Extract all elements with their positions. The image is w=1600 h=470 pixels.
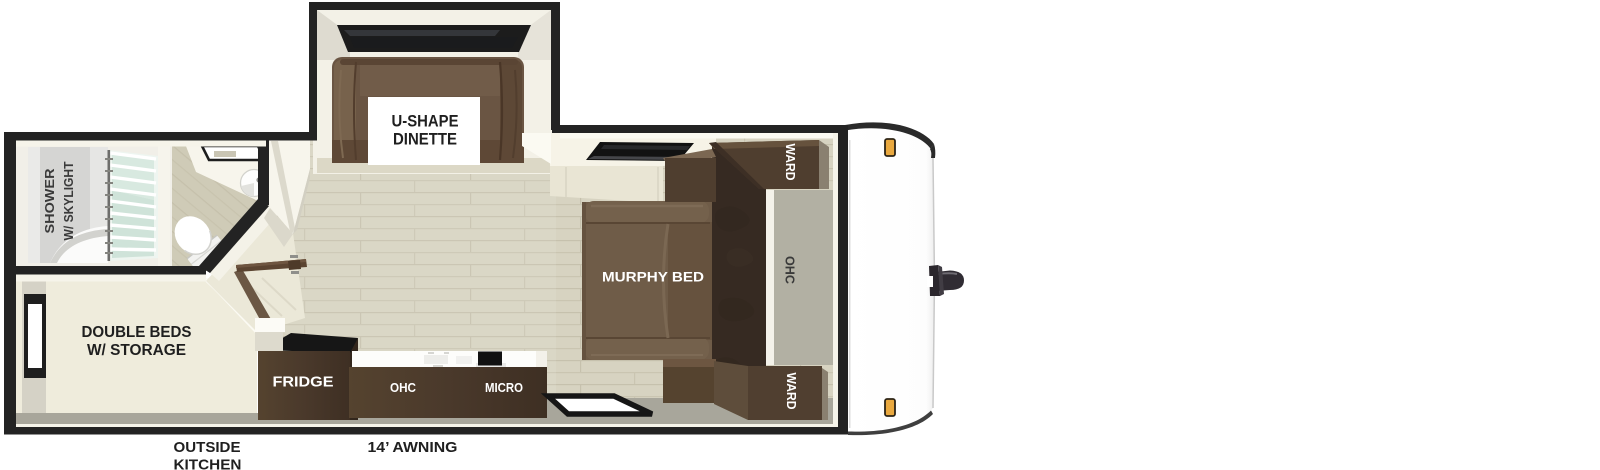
svg-text:MICRO: MICRO [485, 381, 523, 395]
svg-text:FRIDGE: FRIDGE [273, 374, 334, 391]
svg-text:DINETTE: DINETTE [393, 131, 457, 149]
svg-text:W/ STORAGE: W/ STORAGE [87, 342, 186, 359]
svg-text:14’ AWNING: 14’ AWNING [368, 440, 458, 456]
svg-text:KITCHEN: KITCHEN [174, 458, 242, 470]
svg-text:OHC: OHC [783, 256, 797, 284]
svg-text:OHC: OHC [390, 381, 416, 395]
svg-text:OUTSIDE: OUTSIDE [174, 440, 241, 456]
svg-text:WARD: WARD [784, 373, 799, 410]
svg-text:MURPHY BED: MURPHY BED [602, 269, 704, 285]
svg-text:SHOWER: SHOWER [43, 169, 57, 234]
svg-text:U-SHAPE: U-SHAPE [392, 113, 459, 131]
svg-text:W/ SKYLIGHT: W/ SKYLIGHT [62, 161, 76, 240]
svg-text:DOUBLE BEDS: DOUBLE BEDS [82, 324, 192, 341]
svg-text:WARD: WARD [783, 144, 798, 181]
